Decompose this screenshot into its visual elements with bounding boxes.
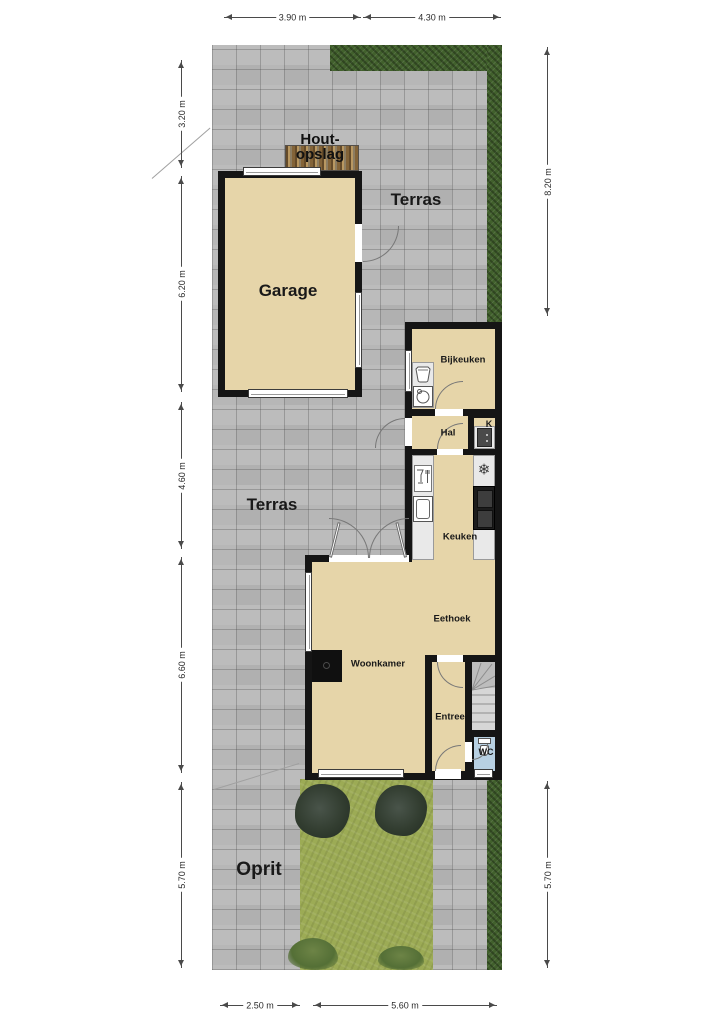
- hedge-top: [330, 45, 502, 71]
- garage-label: Garage: [259, 281, 318, 301]
- dimension-label: 4.60 m: [177, 459, 187, 493]
- dimension-bottom-1: 2.50 m: [220, 1005, 300, 1006]
- hal-exterior-door: [405, 418, 412, 446]
- floorplan-canvas: Hout- opslag: [0, 0, 724, 1024]
- dimension-label: 3.90 m: [276, 13, 310, 23]
- garage-side-door: [355, 224, 362, 262]
- bijkeuken-label: Bijkeuken: [441, 355, 486, 366]
- dimension-label: 5.70 m: [177, 858, 187, 892]
- bush-icon: [378, 946, 424, 970]
- garage-window-top: [243, 167, 321, 176]
- sink-icon: [413, 496, 433, 522]
- houtopslag-label-line1: Hout-: [282, 132, 358, 147]
- hedge-right-upper: [487, 45, 502, 322]
- wc-window: [474, 769, 493, 778]
- dimension-right-2: 5.70 m: [547, 781, 548, 968]
- living-open-floor: [312, 562, 495, 655]
- dimension-right-1: 8.20 m: [547, 47, 548, 316]
- dimension-label: 3.20 m: [177, 97, 187, 131]
- fireplace: [312, 650, 342, 682]
- bush-icon: [375, 785, 427, 836]
- woonkamer-window-left: [305, 572, 312, 652]
- hal-keuken-door: [437, 449, 463, 455]
- washbasin-icon: [414, 364, 432, 384]
- dimension-left-3: 4.60 m: [181, 402, 182, 549]
- hal-label: Hal: [441, 428, 456, 439]
- washing-machine-icon: [413, 386, 433, 407]
- terras-mid-label: Terras: [247, 495, 298, 515]
- wc-label: WC: [479, 747, 494, 757]
- keuken-label: Keuken: [443, 532, 477, 543]
- garage-window-right: [355, 292, 362, 368]
- terras-top-label: Terras: [391, 190, 442, 210]
- dimension-left-1: 3.20 m: [181, 60, 182, 168]
- dimension-label: 8.20 m: [543, 165, 553, 199]
- dimension-label: 5.70 m: [543, 858, 553, 892]
- woonkamer-window-bottom: [318, 769, 404, 778]
- dimension-left-5: 5.70 m: [181, 782, 182, 968]
- wc-door: [465, 742, 472, 762]
- wall-stairs-wc: [472, 730, 502, 737]
- eethoek-entree-door: [437, 655, 463, 662]
- dimension-left-4: 6.60 m: [181, 557, 182, 773]
- dimension-label: 4.30 m: [415, 13, 449, 23]
- entree-label: Entree: [435, 712, 465, 723]
- hedge-right-lower: [487, 780, 502, 970]
- bush-icon: [295, 784, 350, 838]
- dishwasher-icon: [414, 465, 432, 492]
- cooktop-icon: [473, 486, 495, 530]
- stairs: [472, 662, 495, 730]
- eethoek-label: Eethoek: [434, 614, 471, 625]
- houtopslag-label-line2: opslag: [282, 147, 358, 162]
- bijkeuken-window: [405, 350, 412, 392]
- dimension-label: 5.60 m: [388, 1001, 422, 1011]
- boiler-icon: [477, 428, 492, 447]
- freezer-icon: ❄: [478, 463, 491, 478]
- dimension-label: 6.60 m: [177, 648, 187, 682]
- fireplace-flue-icon: [323, 662, 330, 669]
- oprit-label: Oprit: [236, 859, 281, 881]
- dimension-bottom-2: 5.60 m: [313, 1005, 497, 1006]
- dimension-top-2: 4.30 m: [363, 17, 501, 18]
- houtopslag-label: Hout- opslag: [282, 132, 358, 162]
- kast-label: K: [486, 419, 493, 429]
- dimension-label: 6.20 m: [177, 267, 187, 301]
- bijkeuken-door: [435, 409, 463, 416]
- garage-door-bottom: [248, 389, 348, 398]
- dimension-top-1: 3.90 m: [224, 17, 361, 18]
- woonkamer-label: Woonkamer: [351, 659, 405, 670]
- dimension-left-2: 6.20 m: [181, 176, 182, 392]
- dimension-label: 2.50 m: [243, 1001, 277, 1011]
